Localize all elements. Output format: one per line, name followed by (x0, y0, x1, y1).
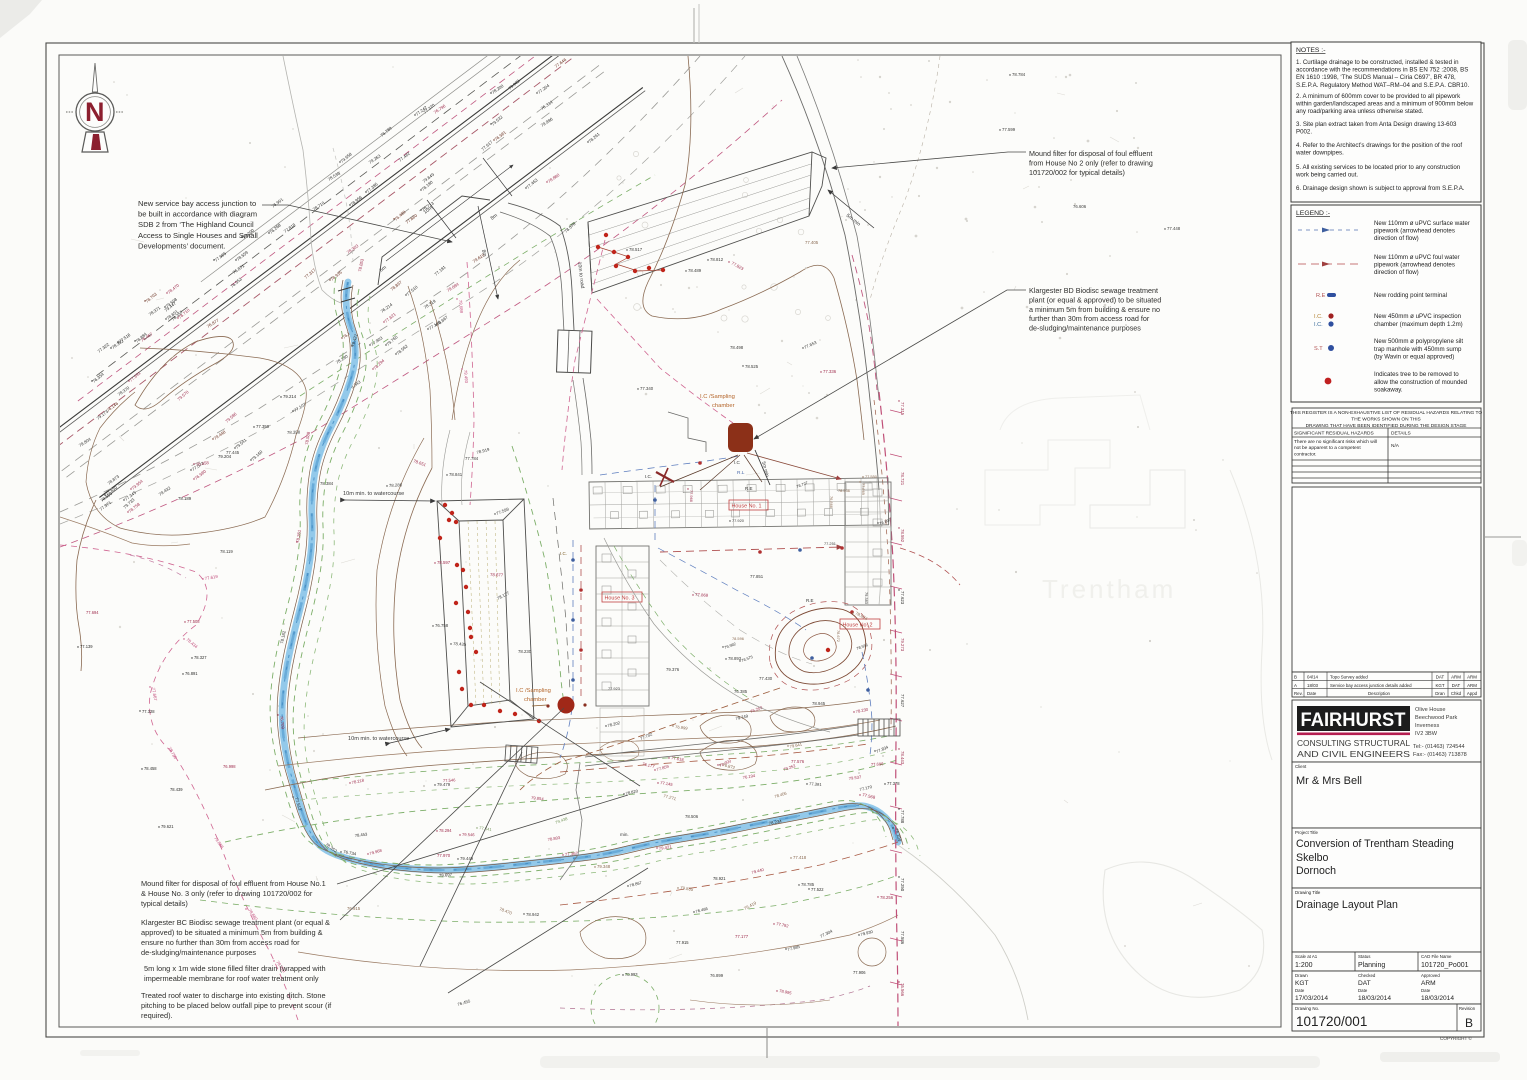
svg-text:& House No. 3 only (refer to d: & House No. 3 only (refer to drawing 101… (141, 889, 313, 898)
svg-text:78.230: 78.230 (518, 649, 532, 654)
svg-text:S.T: S.T (1314, 346, 1323, 352)
svg-text:78.784: 78.784 (1012, 72, 1026, 77)
svg-text:78.489: 78.489 (688, 268, 702, 273)
svg-text:contractor.: contractor. (1294, 451, 1316, 457)
svg-text:EN 1610 :1998, ‘The SUDS Manua: EN 1610 :1998, ‘The SUDS Manual – Ciria … (1296, 74, 1456, 81)
svg-text:77.623: 77.623 (900, 591, 905, 605)
svg-text:A: A (1294, 683, 1297, 688)
svg-text:any road/parking area unless o: any road/parking area unless otherwise s… (1296, 108, 1424, 115)
svg-text:S.E.P.A. Regulatory Method WAT: S.E.P.A. Regulatory Method WAT–RM–04 and… (1296, 82, 1469, 89)
svg-text:direction of flow): direction of flow) (1374, 269, 1419, 276)
svg-text:78.597: 78.597 (437, 560, 451, 565)
svg-text:Access to Single Houses and Sm: Access to Single Houses and Small (138, 231, 258, 240)
svg-text:NOTES :-: NOTES :- (1296, 47, 1325, 54)
svg-text:77.788: 77.788 (900, 810, 905, 824)
svg-text:Rev.: Rev. (1294, 691, 1303, 696)
svg-text:10m min. to watercourse: 10m min. to watercourse (343, 491, 404, 497)
svg-text:77.448: 77.448 (1167, 226, 1181, 231)
svg-text:R.E: R.E (1316, 293, 1326, 299)
svg-text:77.315: 77.315 (900, 402, 905, 416)
svg-text:CAD File Name: CAD File Name (1421, 954, 1452, 959)
svg-text:77.869: 77.869 (861, 483, 866, 495)
svg-text:78.294: 78.294 (439, 828, 452, 833)
svg-text:P002.: P002. (1296, 129, 1312, 136)
svg-text:typical details): typical details) (141, 899, 188, 908)
svg-text:Description: Description (1368, 691, 1391, 696)
svg-text:ARM: ARM (1421, 980, 1436, 987)
svg-text:77.430: 77.430 (759, 676, 773, 681)
svg-text:78.596: 78.596 (732, 636, 744, 641)
svg-text:77.968: 77.968 (689, 490, 694, 502)
svg-text:78.893: 78.893 (728, 656, 742, 661)
svg-text:77.627: 77.627 (900, 694, 905, 708)
svg-text:77.920: 77.920 (732, 518, 745, 523)
svg-text:77.177: 77.177 (735, 934, 749, 939)
svg-text:78.536: 78.536 (838, 488, 850, 493)
svg-text:ARM: ARM (1467, 683, 1477, 688)
svg-text:78.439: 78.439 (170, 787, 183, 792)
svg-text:76.891: 76.891 (185, 671, 198, 676)
svg-text:N: N (85, 97, 105, 127)
svg-text:I.C: I.C (734, 460, 741, 465)
svg-text:18/03/2014: 18/03/2014 (1358, 995, 1391, 1002)
svg-text:FAIRHURST: FAIRHURST (1301, 710, 1406, 731)
svg-text:Dornoch: Dornoch (1296, 865, 1336, 877)
svg-text:78.942: 78.942 (526, 912, 540, 917)
svg-text:77.851: 77.851 (750, 574, 764, 579)
svg-text:77.970: 77.970 (437, 853, 451, 858)
svg-text:78.498: 78.498 (730, 345, 744, 350)
svg-text:04/14: 04/14 (1307, 675, 1319, 680)
svg-text:work being carried out.: work being carried out. (1295, 172, 1358, 179)
svg-text:Mound filter for disposal of f: Mound filter for disposal of foul efflue… (1029, 149, 1152, 158)
svg-text:required).: required). (141, 1011, 173, 1020)
svg-text:allow the construction of moun: allow the construction of mounded (1374, 379, 1468, 386)
svg-text:Drainage Layout Plan: Drainage Layout Plan (1296, 899, 1398, 911)
svg-text:78.785: 78.785 (801, 882, 815, 887)
svg-text:78.119: 78.119 (220, 549, 233, 554)
svg-text:79.621: 79.621 (161, 824, 174, 829)
svg-text:I.C /Sampling: I.C /Sampling (516, 688, 551, 694)
svg-text:77.139: 77.139 (80, 644, 93, 649)
svg-text:(by Wavin or equal approved): (by Wavin or equal approved) (1374, 354, 1454, 361)
svg-text:New 500mm ø polypropylene silt: New 500mm ø polypropylene silt (1374, 338, 1463, 345)
svg-text:be built in accordance with di: be built in accordance with diagram (138, 210, 257, 219)
svg-text:77.522: 77.522 (811, 887, 824, 892)
svg-text:ARM: ARM (1467, 675, 1477, 680)
svg-text:B: B (1465, 1016, 1473, 1030)
svg-text:Checked: Checked (1358, 973, 1376, 978)
svg-text:78.256: 78.256 (880, 895, 894, 900)
svg-text:77.915: 77.915 (676, 940, 689, 945)
svg-text:New 450mm ø uPVC inspection: New 450mm ø uPVC inspection (1374, 313, 1462, 320)
svg-text:2. A minimum of 600mm cover to: 2. A minimum of 600mm cover to be provid… (1296, 93, 1461, 100)
svg-text:78.506: 78.506 (685, 814, 699, 819)
svg-text:76.868: 76.868 (829, 496, 834, 508)
svg-text:Skelbo: Skelbo (1296, 852, 1328, 864)
svg-text:79.214: 79.214 (283, 394, 297, 399)
svg-text:Project Title: Project Title (1295, 830, 1318, 835)
svg-text:76.758: 76.758 (435, 623, 449, 628)
svg-text:76.899: 76.899 (710, 973, 724, 978)
svg-text:plant (or equal & approved) to: plant (or equal & approved) to be situat… (1029, 295, 1161, 304)
svg-text:Date: Date (1307, 691, 1317, 696)
svg-text:DAT: DAT (1452, 683, 1461, 688)
svg-text:chamber (maximum depth 1.2m): chamber (maximum depth 1.2m) (1374, 321, 1463, 328)
svg-text:Inverness: Inverness (1415, 723, 1439, 729)
svg-text:78.812: 78.812 (710, 257, 724, 262)
svg-text:min.: min. (620, 832, 629, 837)
svg-text:Conversion of Trentham Steadin: Conversion of Trentham Steading (1296, 838, 1454, 850)
svg-text:4. Refer to the Architect’s dr: 4. Refer to the Architect’s drawings for… (1296, 142, 1462, 149)
svg-text:77.586: 77.586 (900, 931, 905, 945)
svg-text:I.C /Sampling: I.C /Sampling (700, 394, 735, 400)
svg-text:chamber: chamber (524, 697, 547, 703)
svg-text:approved) to be situated a min: approved) to be situated a minimum 5m fr… (141, 928, 323, 937)
svg-text:78.517: 78.517 (629, 247, 643, 252)
svg-text:Date: Date (1295, 988, 1305, 993)
svg-text:78.189: 78.189 (178, 496, 192, 501)
svg-text:77.784: 77.784 (465, 456, 479, 461)
svg-text:78.721: 78.721 (900, 472, 905, 486)
svg-text:79.273: 79.273 (900, 638, 905, 652)
svg-text:not be apparent to a competent: not be apparent to a competent (1294, 445, 1361, 451)
svg-text:10m min. to watercourse: 10m min. to watercourse (348, 736, 409, 742)
svg-text:Fax:- (01463) 713878: Fax:- (01463) 713878 (1413, 752, 1467, 758)
svg-text:77.868: 77.868 (695, 592, 709, 598)
svg-text:within garden/landscaped areas: within garden/landscaped areas and a min… (1295, 101, 1474, 108)
svg-text:78.384: 78.384 (320, 481, 334, 486)
svg-text:Tel:- (01463) 724544: Tel:- (01463) 724544 (1413, 744, 1465, 750)
svg-text:Klargester BC Biodisc sewage t: Klargester BC Biodisc sewage treatment p… (141, 918, 330, 927)
svg-text:pipework (arrowhead denotes: pipework (arrowhead denotes (1374, 228, 1455, 235)
svg-text:Beechwood Park: Beechwood Park (1415, 715, 1457, 721)
svg-text:DAT: DAT (1436, 675, 1445, 680)
svg-text:COPYRIGHT ©: COPYRIGHT © (1440, 1035, 1473, 1041)
svg-text:77.906: 77.906 (853, 970, 866, 975)
svg-text:77.378: 77.378 (887, 781, 900, 786)
svg-text:77.250: 77.250 (900, 878, 905, 892)
svg-text:Date: Date (1358, 988, 1368, 993)
svg-text:Drawing No.: Drawing No. (1295, 1006, 1319, 1011)
svg-text:Mound filter for disposal of f: Mound filter for disposal of foul efflue… (141, 879, 326, 888)
svg-text:77.508: 77.508 (187, 619, 200, 624)
svg-text:77.576: 77.576 (791, 759, 805, 764)
svg-text:Date: Date (1421, 988, 1431, 993)
svg-text:direction of flow): direction of flow) (1374, 235, 1419, 242)
svg-text:further than 30m from access r: further than 30m from access road for (1029, 314, 1150, 323)
svg-text:77.251: 77.251 (824, 541, 836, 546)
svg-text:78.921: 78.921 (713, 876, 726, 881)
svg-text:76.606: 76.606 (1073, 204, 1087, 209)
svg-text:Dran: Dran (1435, 691, 1445, 696)
svg-text:78.945: 78.945 (812, 701, 826, 706)
svg-text:N/A: N/A (1391, 443, 1400, 449)
svg-text:76.385: 76.385 (734, 689, 748, 694)
svg-text:House No. 3: House No. 3 (605, 596, 635, 602)
svg-text:79.348: 79.348 (597, 864, 611, 869)
svg-text:78.358: 78.358 (287, 430, 301, 435)
svg-text:THE WORKS SHOWN ON THIS: THE WORKS SHOWN ON THIS (1351, 416, 1420, 422)
svg-text:76.998: 76.998 (223, 764, 236, 769)
svg-text:77.328: 77.328 (142, 709, 155, 714)
svg-text:77.696: 77.696 (871, 761, 885, 767)
svg-text:KGT: KGT (1435, 683, 1444, 688)
svg-text:New service bay access junctio: New service bay access junction to (138, 199, 256, 208)
svg-text:Treated roof water to discharg: Treated roof water to discharge into exi… (141, 991, 326, 1000)
svg-text:SDB 2 from ‘The Highland Counc: SDB 2 from ‘The Highland Council (138, 220, 254, 229)
svg-text:Status: Status (1358, 954, 1371, 959)
svg-text:de-sludging/maintenance purpos: de-sludging/maintenance purposes (141, 948, 256, 957)
svg-text:ARM: ARM (1451, 675, 1461, 680)
svg-text:Drawing Title: Drawing Title (1295, 890, 1321, 895)
svg-text:78.458: 78.458 (144, 766, 157, 771)
svg-text:trap manhole with 450mm sump: trap manhole with 450mm sump (1374, 346, 1462, 353)
svg-text:Client: Client (1295, 764, 1307, 769)
svg-text:79.546: 79.546 (462, 832, 475, 837)
svg-text:5. All existing services to be: 5. All existing services to be located p… (1296, 164, 1461, 171)
svg-text:IV2 3BW: IV2 3BW (1415, 731, 1438, 737)
svg-text:78.677: 78.677 (490, 572, 504, 577)
svg-text:I.C.: I.C. (560, 551, 567, 556)
svg-text:18/03: 18/03 (1307, 683, 1319, 688)
svg-text:Revision: Revision (1459, 1006, 1476, 1011)
svg-text:78.327: 78.327 (194, 655, 207, 660)
svg-text:79.697: 79.697 (439, 872, 453, 878)
svg-text:1:200: 1:200 (1295, 962, 1313, 969)
svg-text:CONSULTING STRUCTURAL: CONSULTING STRUCTURAL (1297, 739, 1410, 748)
svg-text:78.435: 78.435 (453, 641, 467, 647)
svg-text:There are no significant risks: There are no significant risks which wil… (1294, 439, 1377, 445)
svg-text:101720/002 for typical details: 101720/002 for typical details) (1029, 168, 1125, 177)
svg-text:New 110mm ø uPVC surface water: New 110mm ø uPVC surface water (1374, 220, 1470, 227)
svg-text:pitching to be placed below ou: pitching to be placed below outfall pipe… (141, 1001, 332, 1010)
svg-text:77.445: 77.445 (226, 450, 240, 455)
svg-text:78.286: 78.286 (389, 482, 403, 488)
svg-text:a minimum 5m from building & e: a minimum 5m from building & ensure no (1029, 305, 1160, 314)
svg-text:R.E: R.E (806, 598, 814, 603)
svg-text:Scale at A1: Scale at A1 (1295, 954, 1318, 959)
svg-text:Topo Survey added: Topo Survey added (1330, 675, 1368, 680)
svg-text:77.923: 77.923 (608, 686, 620, 691)
svg-text:LEGEND :-: LEGEND :- (1296, 210, 1330, 217)
svg-text:79.479: 79.479 (437, 782, 451, 787)
svg-text:AND CIVIL ENGINEERS: AND CIVIL ENGINEERS (1297, 750, 1411, 759)
svg-text:chamber: chamber (712, 403, 735, 409)
svg-text:from House No 2 only (refer to: from House No 2 only (refer to drawing (1029, 158, 1153, 167)
svg-text:House No. 1: House No. 1 (732, 504, 762, 510)
svg-text:78.841: 78.841 (449, 472, 463, 477)
svg-text:House No. 2: House No. 2 (843, 623, 873, 629)
svg-text:R.L: R.L (737, 470, 745, 476)
svg-text:Indicates tree to be removed t: Indicates tree to be removed to (1374, 371, 1459, 378)
svg-text:soakaway.: soakaway. (1374, 387, 1403, 394)
svg-text:ensure no further than 30m fro: ensure no further than 30m from access r… (141, 938, 300, 947)
svg-text:77.340: 77.340 (640, 386, 654, 391)
svg-text:77.418: 77.418 (793, 855, 807, 860)
svg-text:78.525: 78.525 (745, 364, 759, 369)
svg-text:77.694: 77.694 (86, 610, 99, 615)
svg-text:DAT: DAT (1358, 980, 1371, 987)
svg-text:77.405: 77.405 (805, 240, 819, 245)
svg-text:I.C.: I.C. (1314, 314, 1323, 320)
svg-text:3. Site plan extract taken fro: 3. Site plan extract taken from Anta Des… (1296, 121, 1457, 128)
svg-text:79.376: 79.376 (666, 667, 680, 672)
svg-text:Developments’ document.: Developments’ document. (138, 241, 226, 250)
svg-text:Planning: Planning (1358, 962, 1385, 969)
svg-text:impermeable membrane for roof: impermeable membrane for roof water trea… (144, 974, 319, 983)
svg-text:78.552: 78.552 (900, 529, 905, 543)
svg-text:New 110mm ø uPVC foul water: New 110mm ø uPVC foul water (1374, 254, 1460, 261)
svg-text:Drawn: Drawn (1295, 973, 1308, 978)
svg-text:KGT: KGT (1295, 980, 1309, 987)
svg-text:Klargester BD Biodisc sewage t: Klargester BD Biodisc sewage treatment (1029, 286, 1158, 295)
svg-text:I.C.: I.C. (1314, 322, 1323, 328)
svg-text:DETAILS: DETAILS (1391, 431, 1411, 437)
svg-text:de-sludging/maintenance purpos: de-sludging/maintenance purposes (1029, 324, 1141, 333)
svg-text:Mr & Mrs Bell: Mr & Mrs Bell (1296, 775, 1362, 787)
svg-text:1. Curtilage drainage to be co: 1. Curtilage drainage to be constructed,… (1296, 59, 1459, 66)
svg-text:78.443: 78.443 (900, 751, 905, 765)
svg-text:18/03/2014: 18/03/2014 (1421, 995, 1454, 1002)
svg-text:77.599: 77.599 (1002, 127, 1016, 132)
svg-text:Olive House: Olive House (1415, 707, 1445, 713)
svg-text:17/03/2014: 17/03/2014 (1295, 995, 1328, 1002)
svg-text:6. Drainage design shown is su: 6. Drainage design shown is subject to a… (1296, 185, 1465, 192)
svg-text:79.383: 79.383 (864, 592, 869, 604)
svg-text:SIGNIFICANT RESIDUAL HAZARDS: SIGNIFICANT RESIDUAL HAZARDS (1294, 431, 1374, 437)
svg-text:101720_Po001: 101720_Po001 (1421, 962, 1469, 969)
svg-text:77.336: 77.336 (823, 369, 837, 374)
svg-text:79.449: 79.449 (460, 856, 474, 861)
svg-text:R.E: R.E (745, 486, 753, 491)
svg-text:I.C.: I.C. (645, 474, 652, 479)
svg-text:Appd: Appd (1467, 691, 1478, 696)
svg-text:B: B (1294, 675, 1297, 680)
svg-text:101720/001: 101720/001 (1296, 1014, 1367, 1029)
svg-text:pipework (arrowhead denotes: pipework (arrowhead denotes (1374, 262, 1455, 269)
svg-text:Trentham: Trentham (1042, 574, 1176, 604)
svg-text:76.915: 76.915 (347, 906, 361, 911)
svg-text:accordance with the recommenda: accordance with the recommendations in B… (1296, 67, 1468, 74)
svg-text:Chkd: Chkd (1451, 691, 1462, 696)
svg-text:5m long x 1m wide stone filled: 5m long x 1m wide stone filled filter dr… (144, 964, 326, 973)
svg-text:THIS REGISTER IS A NON-EXHAUST: THIS REGISTER IS A NON-EXHAUSTIVE LIST O… (1290, 410, 1482, 416)
svg-text:77.350: 77.350 (256, 424, 270, 429)
svg-text:Approved: Approved (1421, 973, 1440, 978)
svg-text:New rodding point terminal: New rodding point terminal (1374, 292, 1447, 299)
svg-text:Service bay access junction de: Service bay access junction details adde… (1330, 683, 1412, 688)
svg-text:78.672: 78.672 (836, 630, 841, 642)
svg-text:77.550: 77.550 (865, 474, 878, 479)
svg-text:water downpipes.: water downpipes. (1295, 150, 1344, 157)
svg-text:76.566: 76.566 (900, 983, 905, 997)
